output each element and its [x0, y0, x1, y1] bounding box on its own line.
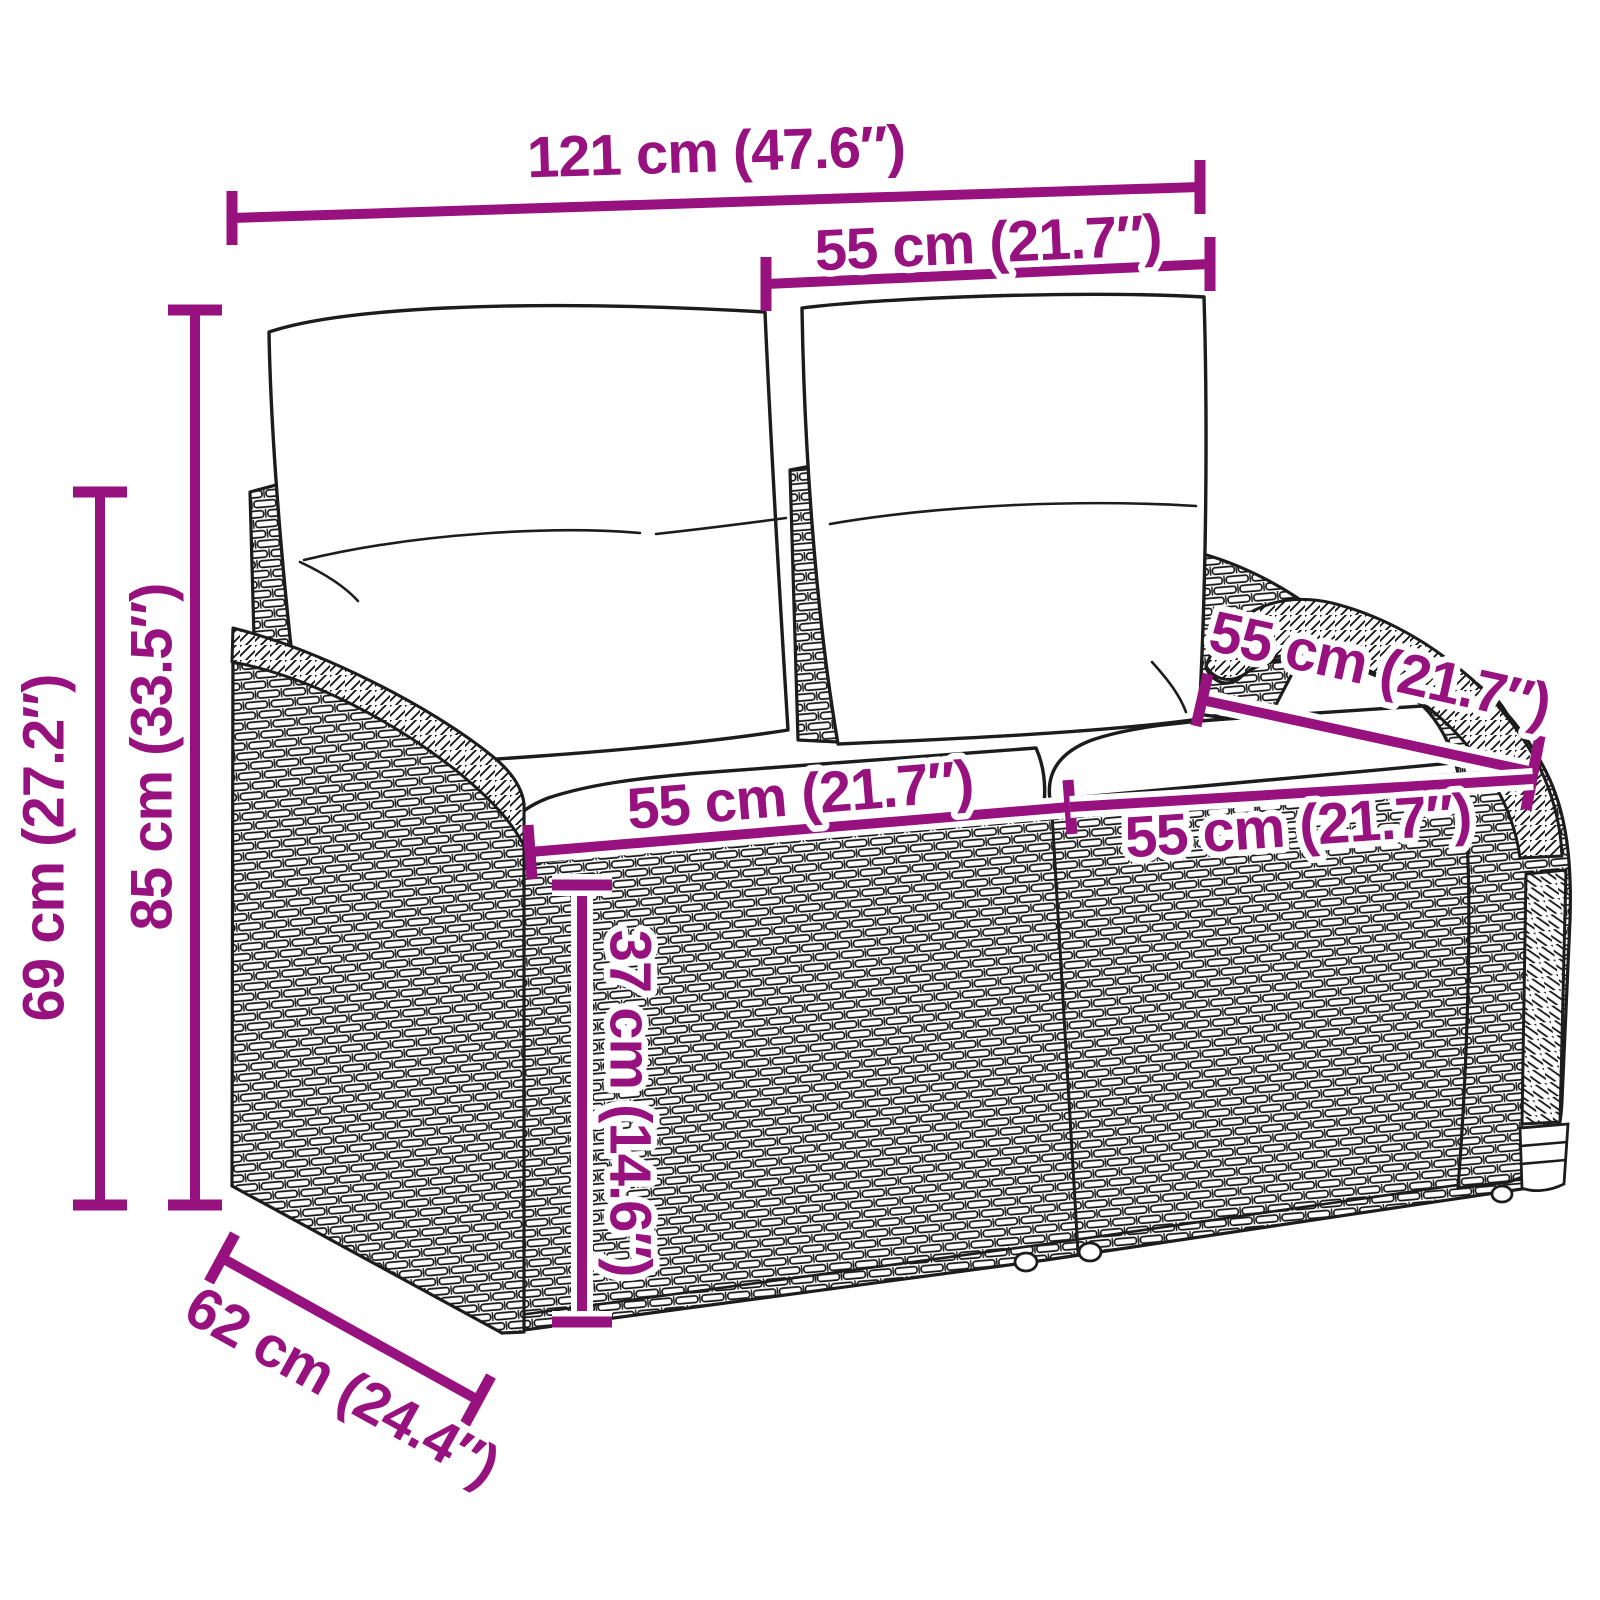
dimension-diagram: 121 cm (47.6″) 55 cm (21.7″) 85 cm (33.5… — [0, 0, 1600, 1600]
dim-seat-height-label: 37 cm (14.6″) — [598, 930, 663, 1277]
garden-bench-diagram: 121 cm (47.6″) 55 cm (21.7″) 85 cm (33.5… — [0, 0, 1600, 1600]
dim-overall-width-label: 121 cm (47.6″) — [526, 114, 906, 191]
back-cushions — [269, 294, 1206, 769]
foot-icon — [1079, 1243, 1101, 1261]
dim-overall-height: 85 cm (33.5″) — [120, 310, 223, 1205]
foot-icon — [1015, 1253, 1037, 1271]
armrest-right-foot-icon — [1520, 1124, 1568, 1191]
dim-overall-height-label: 85 cm (33.5″) — [120, 584, 185, 931]
dim-armrest-height: 69 cm (27.2″) — [12, 492, 128, 1205]
foot-icon — [1492, 1186, 1512, 1202]
dim-armrest-height-label: 69 cm (27.2″) — [12, 675, 77, 1022]
armrest-right-edge-icon — [1522, 870, 1566, 1124]
